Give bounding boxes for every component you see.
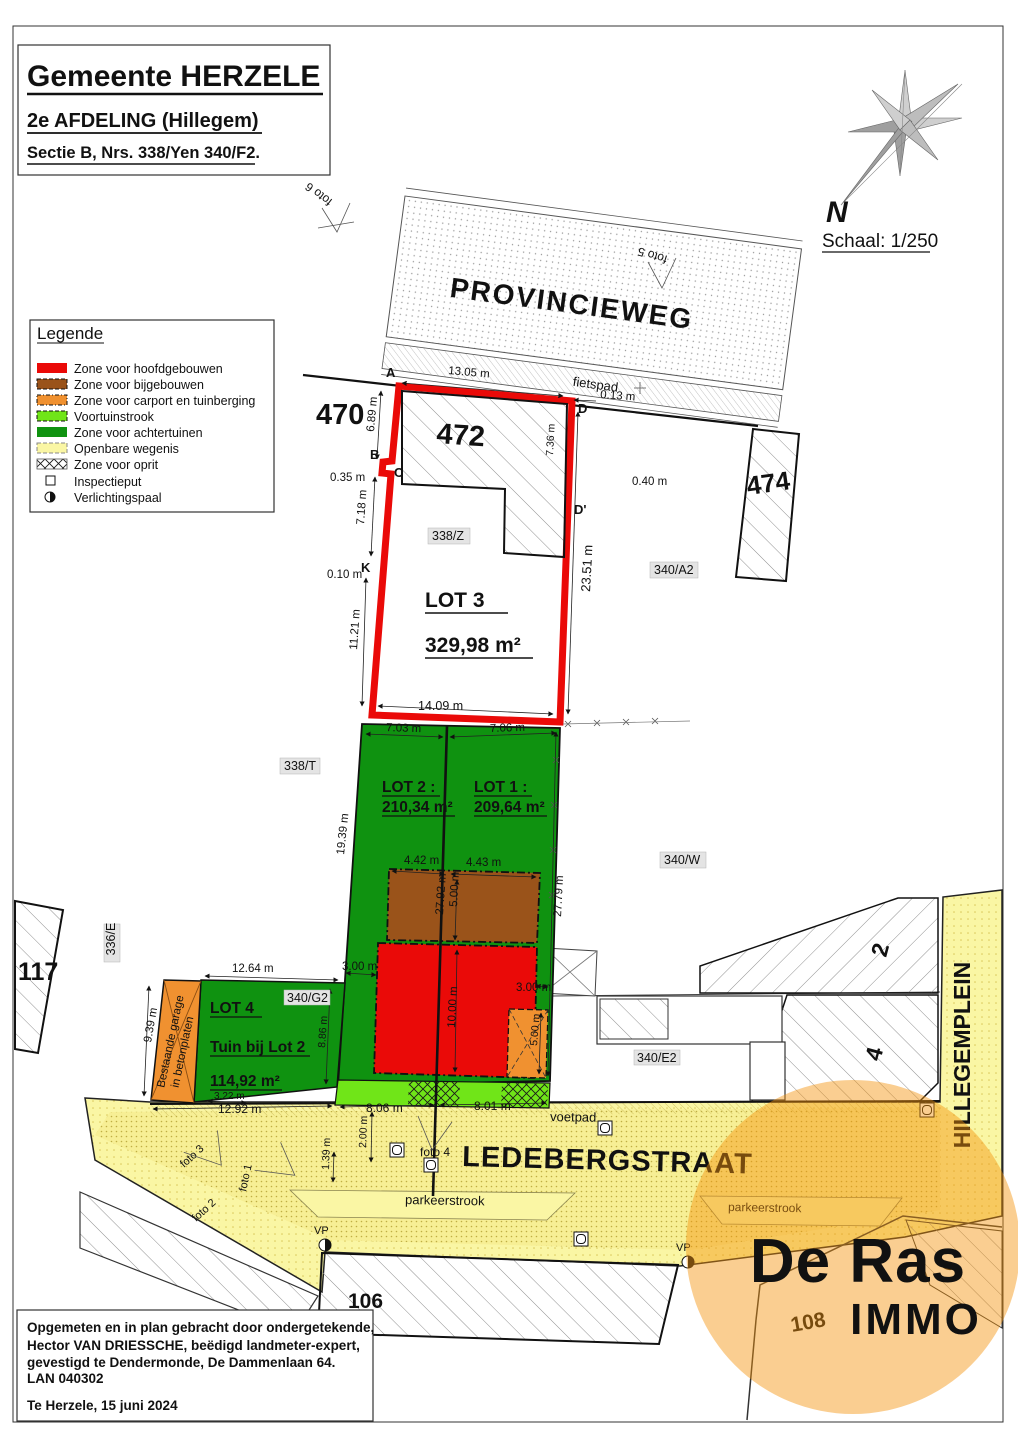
legend-item-label: Openbare wegenis: [74, 442, 179, 456]
note-line4: LAN 040302: [27, 1371, 104, 1386]
legend-item-label: Zone voor carport en tuinberging: [74, 394, 255, 408]
point-a: A: [386, 365, 396, 380]
parcel-340w: 340/W: [664, 853, 700, 867]
lot1-name: LOT 1 :: [474, 779, 527, 796]
point-b: B: [370, 447, 379, 462]
dim-0-40: 0.40 m: [632, 476, 667, 488]
watermark-name: De Ras: [750, 1227, 966, 1296]
legend-item-label: Zone voor hoofdgebouwen: [74, 362, 223, 376]
legend-item-label: Inspectieput: [74, 475, 142, 489]
note-line5: Te Herzele, 15 juni 2024: [27, 1398, 178, 1413]
legend-item-label: Voortuinstrook: [74, 410, 155, 424]
page-subtitle: 2e AFDELING (Hillegem): [27, 110, 259, 132]
dim-3-00-right: 3.00 m: [516, 982, 551, 994]
legend-swatch-oprit: [37, 459, 67, 469]
dim-12-92: 12.92 m: [218, 1102, 261, 1116]
dim-0-35: 0.35 m: [330, 472, 365, 484]
legend-swatch-bijgebouwen: [37, 379, 67, 389]
dim-7-36: 7.36 m: [544, 423, 558, 456]
zone-oprit-1: [408, 1081, 460, 1107]
building-340e2-hatched: [600, 999, 668, 1039]
point-d-prime: D': [574, 502, 586, 517]
legend-item-label: Zone voor achtertuinen: [74, 426, 203, 440]
legend-symbol-inspectieput: [46, 476, 55, 485]
note-line3: gevestigd te Dendermonde, De Dammenlaan …: [27, 1355, 335, 1370]
dim-8-86: 8.86 m: [316, 1015, 330, 1048]
vp-label-left: VP: [314, 1225, 329, 1237]
dim-0-13: 0.13 m: [600, 389, 636, 403]
compass-north-label: N: [826, 196, 849, 229]
parcel-117: 117: [18, 958, 58, 986]
dim-14-09: 14.09 m: [418, 699, 463, 713]
watermark-sub: IMMO: [850, 1295, 982, 1344]
legend-swatch-carport: [37, 395, 67, 405]
point-c: C: [394, 465, 404, 480]
parcel-474: 474: [745, 465, 793, 501]
legend-swatch-wegenis: [37, 443, 67, 453]
zone-bijgebouwen: [387, 869, 540, 943]
legend-title: Legende: [37, 324, 103, 343]
legend-item-label: Zone voor oprit: [74, 458, 159, 472]
legend-swatch-hoofdgebouwen: [37, 363, 67, 373]
lot4-area: 114,92 m²: [210, 1073, 280, 1090]
legend-item-label: Zone voor bijgebouwen: [74, 378, 204, 392]
legend-swatch-achtertuinen: [37, 427, 67, 437]
dim-3-22: 3.22 m: [214, 1091, 245, 1102]
foto4-label: foto 4: [420, 1145, 450, 1159]
parcel-470: 470: [316, 399, 364, 431]
parcel-336e: 336/E: [104, 923, 118, 956]
point-k: K: [361, 560, 371, 575]
parkeerstrook1-label: parkeerstrook: [405, 1192, 485, 1208]
dim-5-00-brown: 5.00 m: [448, 871, 462, 907]
legend-item-label: Verlichtingspaal: [74, 491, 162, 505]
dim-7-18: 7.18 m: [355, 489, 369, 525]
point-d: D: [578, 401, 587, 416]
title-block: Gemeente HERZELE 2e AFDELING (Hillegem) …: [18, 45, 330, 175]
dim-23-51: 23.51 m: [578, 544, 595, 592]
dim-1-39: 1.39 m: [320, 1137, 333, 1170]
page-title: Gemeente HERZELE: [27, 60, 320, 93]
parcel-472: 472: [436, 418, 487, 453]
watermark: De Ras IMMO: [686, 1080, 1018, 1414]
lot1-area: 209,64 m²: [474, 799, 545, 816]
parcel-338t: 338/T: [284, 759, 316, 773]
lot4-sub: Tuin bij Lot 2: [210, 1039, 305, 1056]
legend-symbol-verlichtingspaal: [45, 492, 55, 502]
legend-box: Legende Zone voor hoofdgebouwen Zone voo…: [30, 320, 274, 512]
legend-swatch-voortuinstrook: [37, 411, 67, 421]
dim-8-06: 8.06 m: [366, 1101, 403, 1115]
note-line1: Opgemeten en in plan gebracht door onder…: [27, 1320, 374, 1335]
dim-0-10: 0.10 m: [327, 569, 362, 581]
dim-12-64: 12.64 m: [232, 963, 274, 975]
parcel-338z: 338/Z: [432, 529, 464, 543]
lot2-name: LOT 2 :: [382, 779, 435, 796]
parcel-340e2: 340/E2: [637, 1051, 677, 1065]
parcel-340a2: 340/A2: [654, 563, 694, 577]
dim-27-79: 27.79 m: [552, 875, 566, 917]
dim-4-42: 4.42 m: [404, 855, 439, 867]
dim-7-06: 7.06 m: [490, 722, 526, 735]
parcel-340g2: 340/G2: [287, 991, 328, 1005]
scale-label: Schaal: 1/250: [822, 231, 938, 252]
note-line2: Hector VAN DRIESSCHE, beëdigd landmeter-…: [27, 1338, 360, 1353]
page-section: Sectie B, Nrs. 338/Yen 340/F2.: [27, 144, 260, 162]
dim-4-43: 4.43 m: [466, 857, 501, 869]
dim-3-00-left: 3.00 m: [342, 961, 377, 973]
lot3-name: LOT 3: [425, 589, 485, 612]
survey-plan-canvas: PROVINCIEWEG fietspad foto 5 foto 6: [0, 0, 1018, 1440]
surveyor-note: Opgemeten en in plan gebracht door onder…: [17, 1310, 374, 1421]
dim-7-03: 7.03 m: [386, 722, 422, 735]
dim-8-01: 8.01 m: [474, 1099, 511, 1113]
dim-2-00: 2.00 m: [357, 1115, 370, 1148]
building-340e2-annex: [750, 1042, 785, 1100]
lot3-area: 329,98 m²: [425, 634, 521, 657]
voetpad-label: voetpad: [550, 1109, 597, 1125]
dim-10-00: 10.00 m: [446, 986, 460, 1028]
lot4-name: LOT 4: [210, 1000, 254, 1017]
lot2-area: 210,34 m²: [382, 799, 453, 816]
